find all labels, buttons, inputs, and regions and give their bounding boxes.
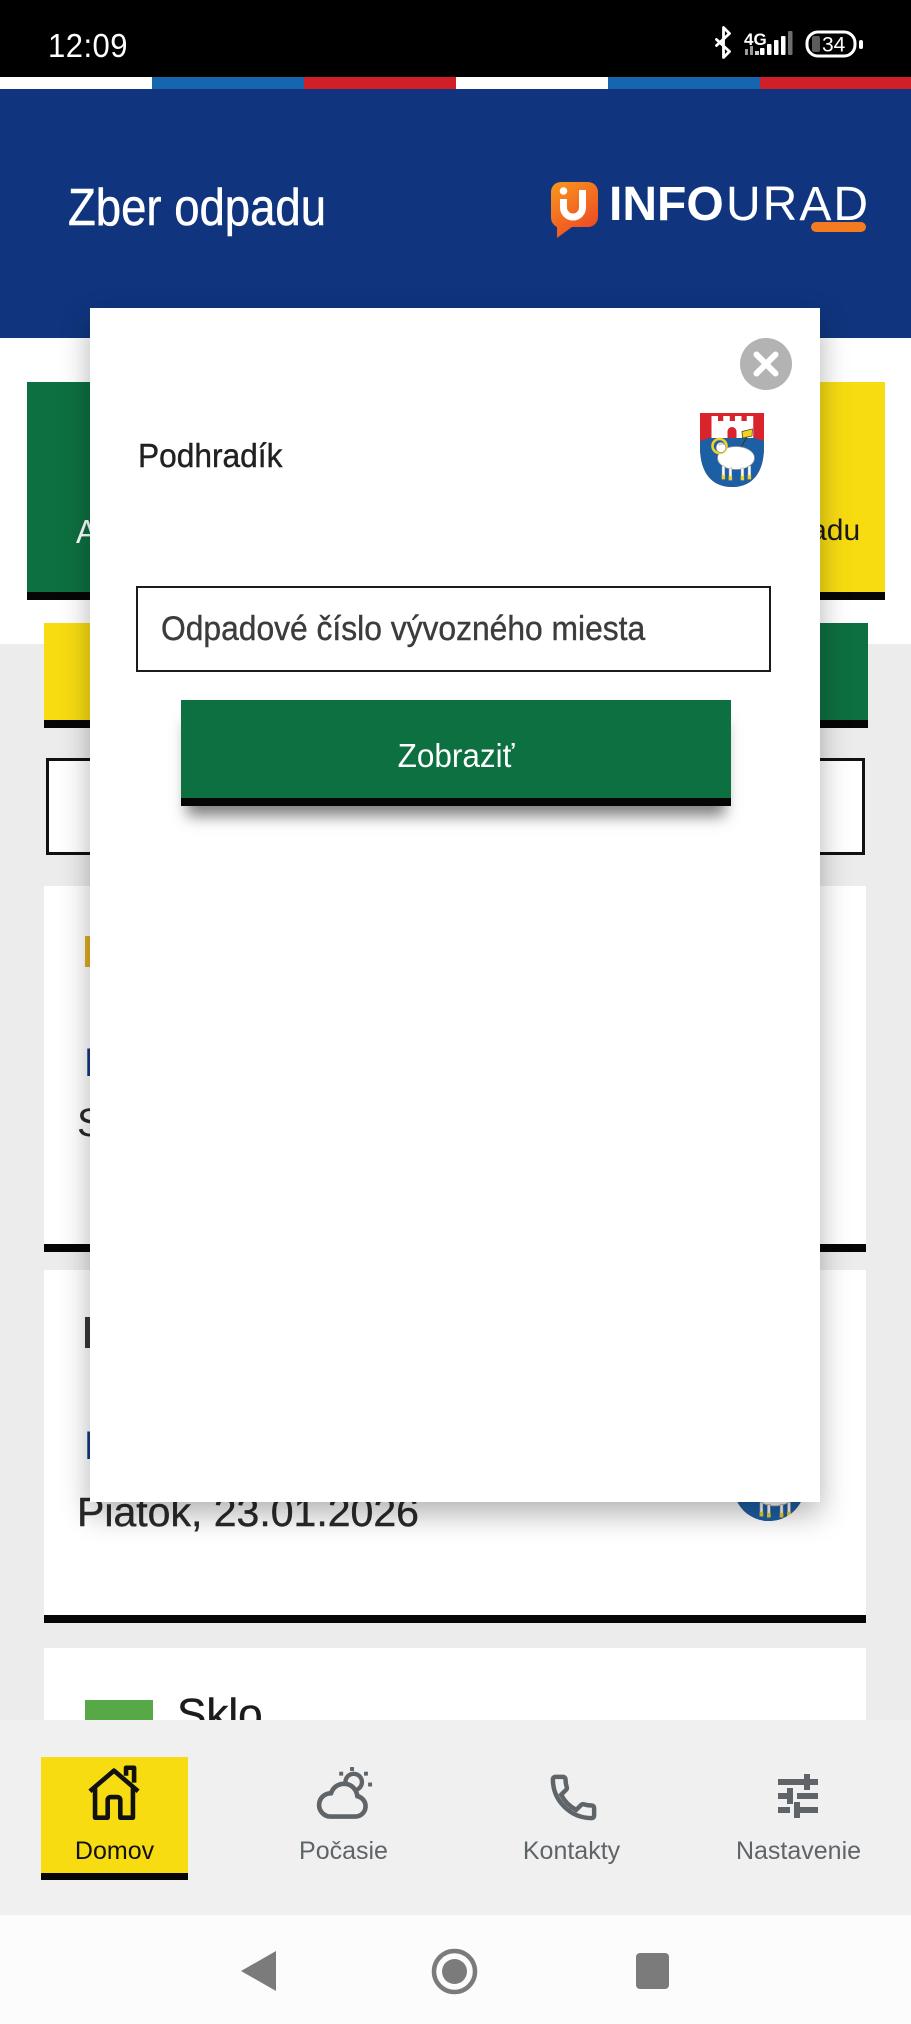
- svg-text:INFO: INFO: [609, 178, 724, 231]
- svg-text:34: 34: [822, 34, 846, 57]
- svg-text:4G: 4G: [744, 30, 767, 49]
